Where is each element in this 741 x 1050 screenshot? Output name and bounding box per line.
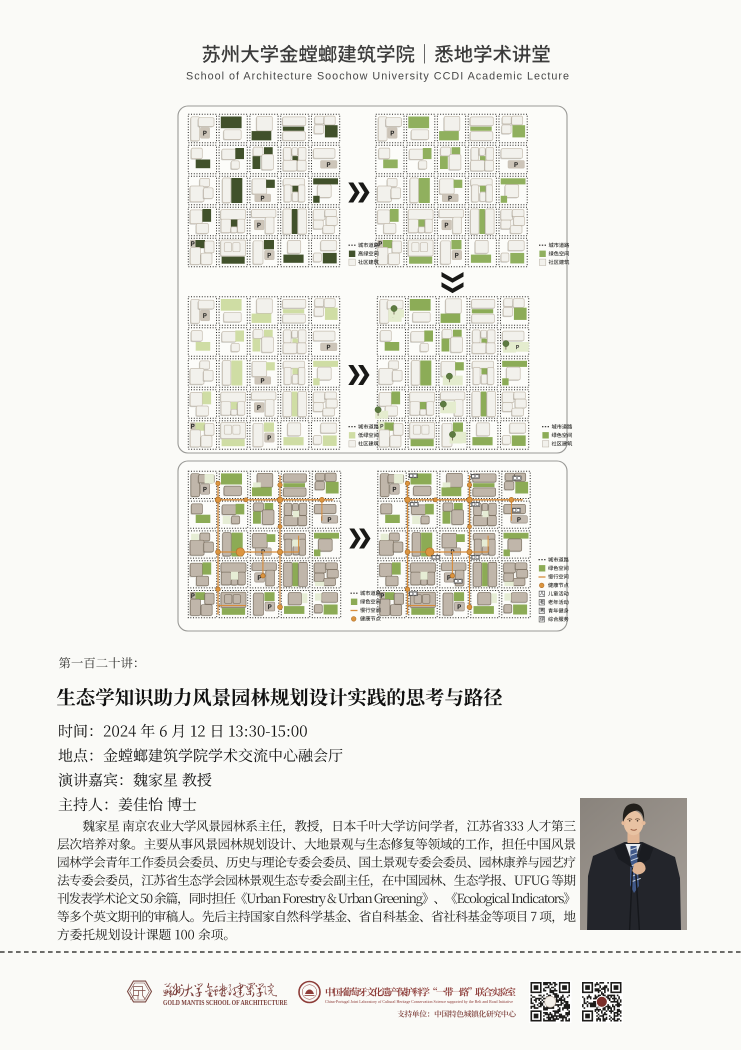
svg-text:GOLD MANTIS SCHOOL OF ARCHITEC: GOLD MANTIS SCHOOL OF ARCHITECTURE (163, 999, 288, 1007)
svg-text:China-Portugal Joint Laborator: China-Portugal Joint Laboratory of Cultu… (325, 999, 513, 1004)
svg-text:School of Architecture Soochow: School of Architecture Soochow Universit… (186, 71, 569, 83)
